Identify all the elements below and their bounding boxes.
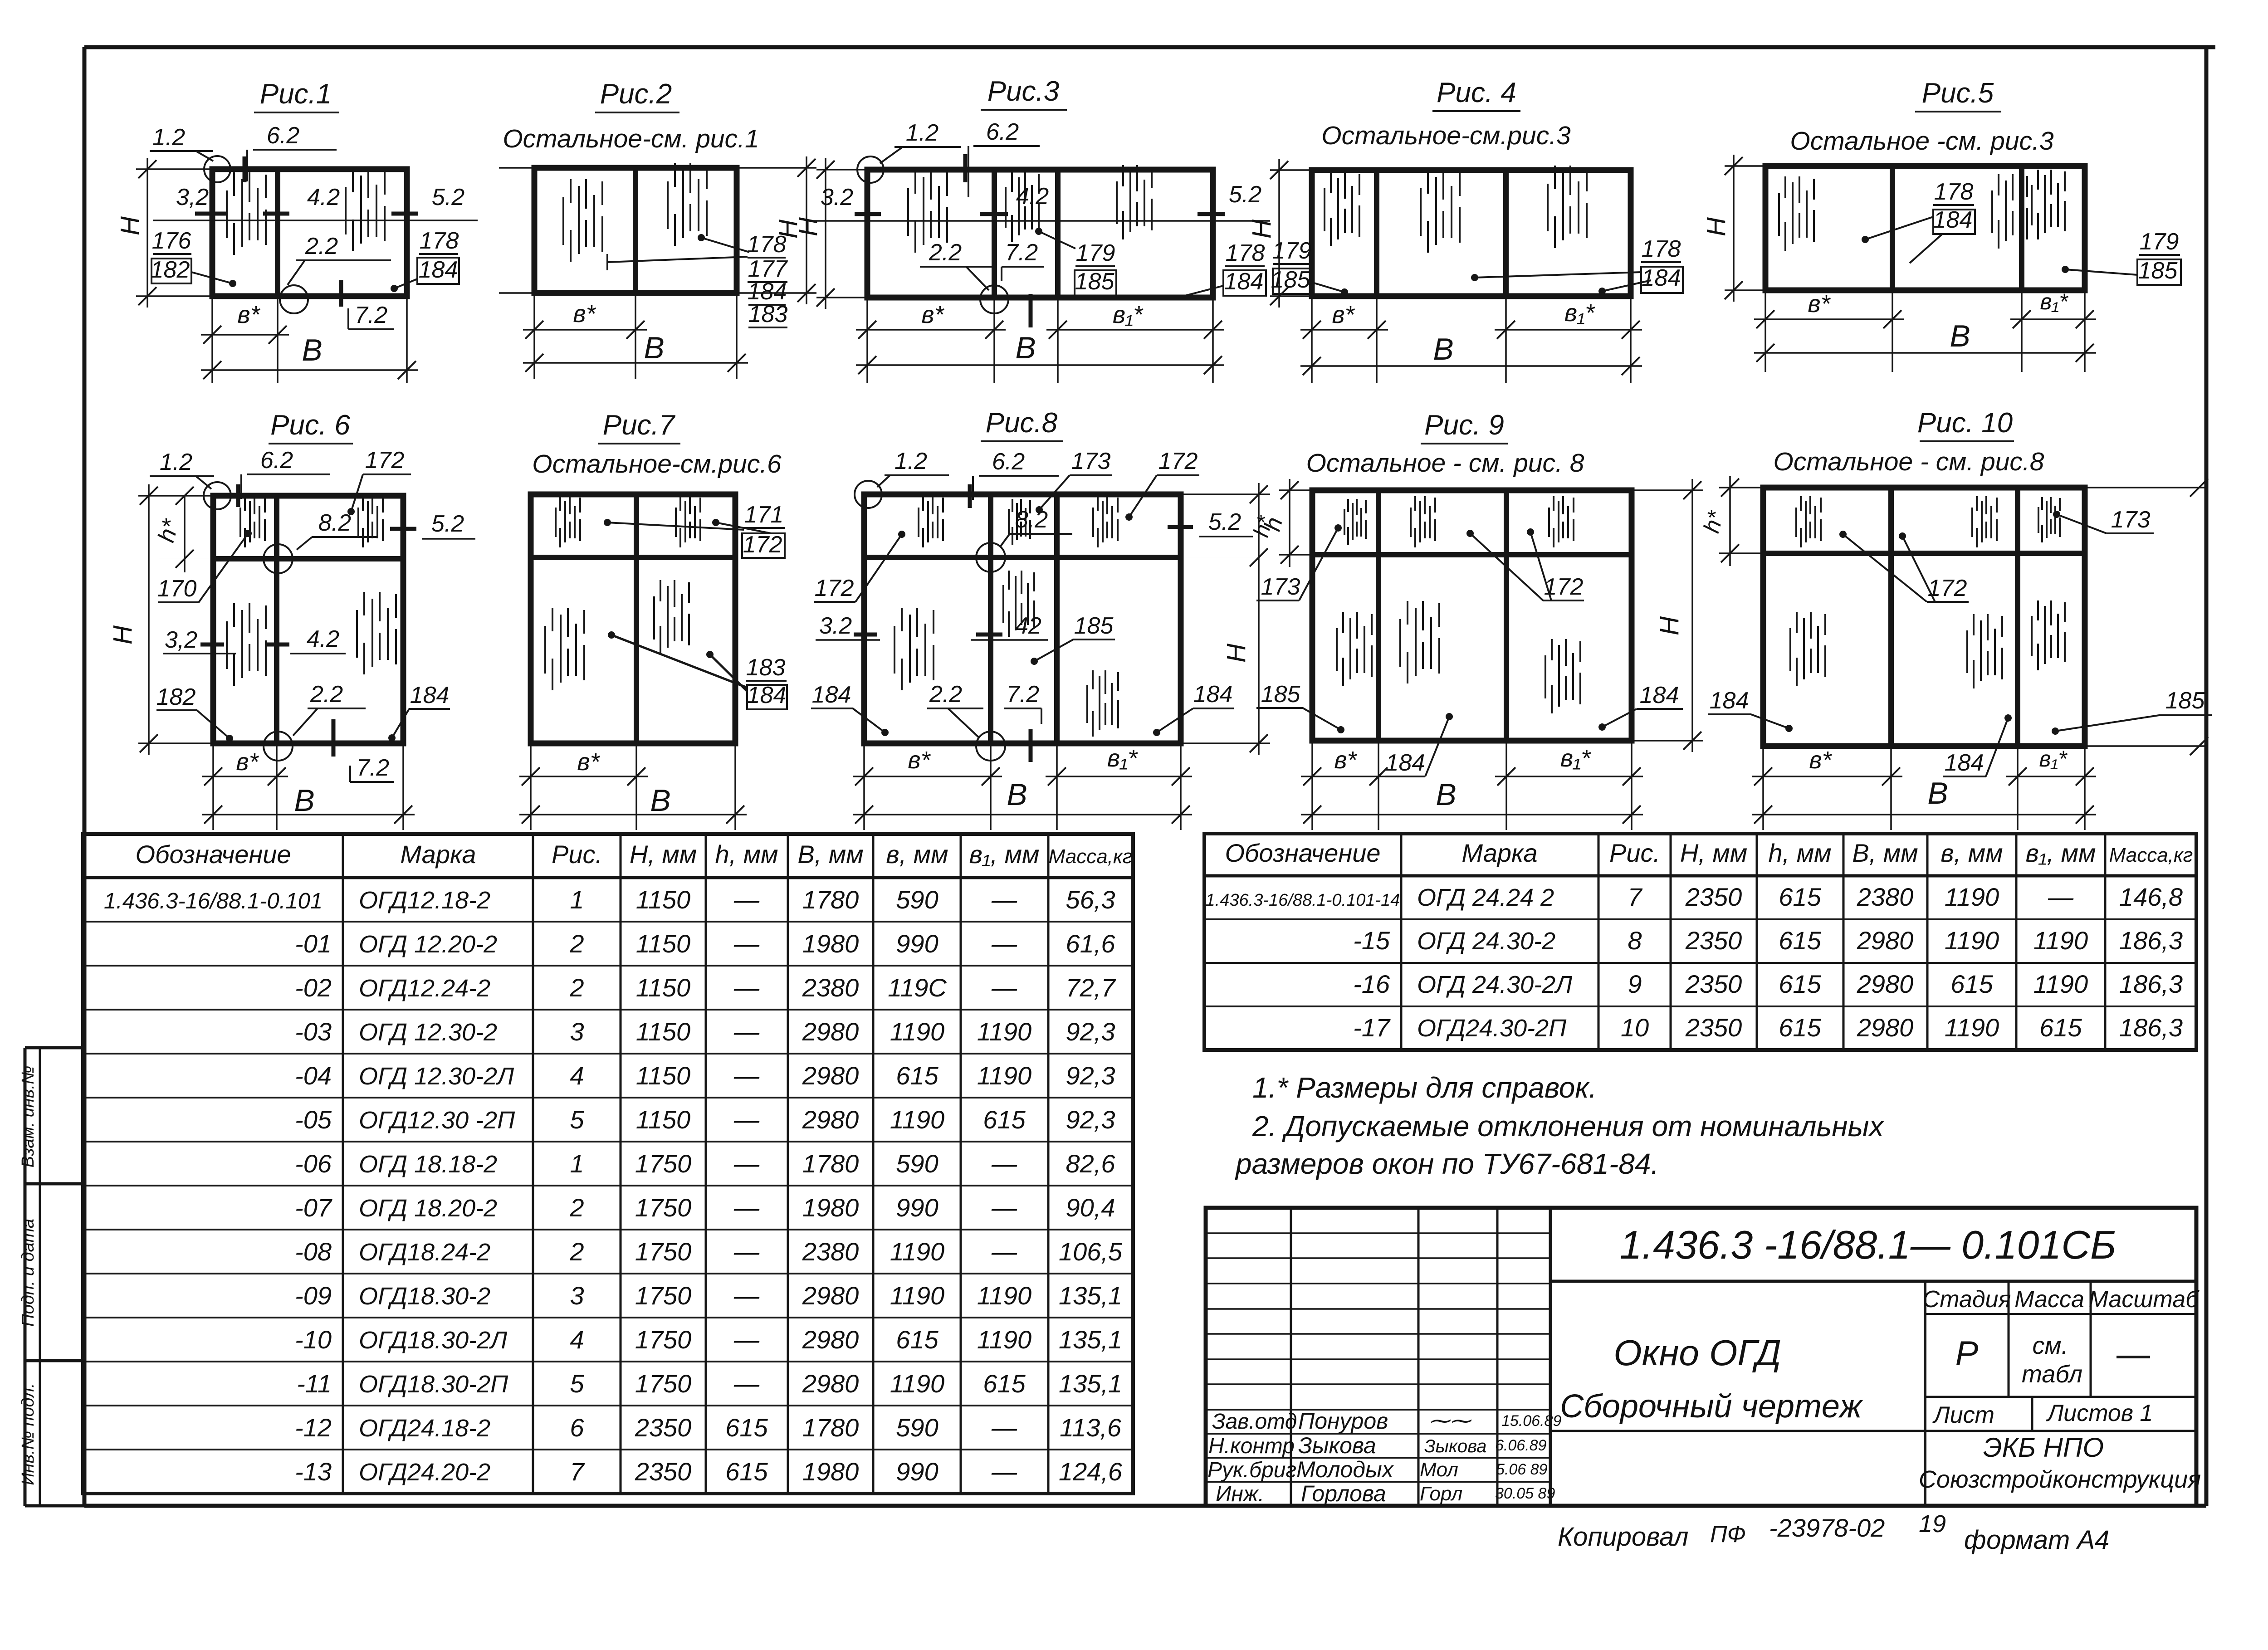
svg-text:184: 184	[419, 257, 458, 283]
svg-text:61,6: 61,6	[1066, 929, 1116, 958]
svg-text:-03: -03	[295, 1017, 332, 1046]
svg-text:Инв.№ подл.: Инв.№ подл.	[19, 1383, 38, 1485]
svg-text:1.2: 1.2	[906, 120, 938, 146]
svg-text:615: 615	[1779, 883, 1821, 911]
svg-text:6.2: 6.2	[260, 447, 293, 474]
svg-text:182: 182	[151, 257, 190, 283]
svg-text:3.2: 3.2	[821, 184, 853, 210]
svg-text:42: 42	[1015, 613, 1041, 639]
svg-text:⁓⁓: ⁓⁓	[1429, 1409, 1472, 1432]
svg-text:Обозначение: Обозначение	[1225, 839, 1380, 867]
svg-text:184: 184	[747, 682, 787, 708]
svg-text:—: —	[991, 1457, 1017, 1486]
svg-text:в, мм: в, мм	[1941, 839, 2003, 867]
svg-text:В: В	[1927, 776, 1948, 810]
svg-text:—: —	[733, 973, 760, 1002]
svg-text:2980: 2980	[802, 1325, 859, 1354]
svg-text:990: 990	[896, 1193, 938, 1222]
svg-text:в*: в*	[573, 300, 596, 327]
svg-text:В: В	[1950, 319, 1970, 353]
svg-text:Марка: Марка	[1461, 839, 1537, 867]
svg-text:1980: 1980	[802, 1193, 859, 1222]
svg-text:615: 615	[1950, 970, 1993, 998]
svg-text:Р: Р	[1955, 1334, 1979, 1373]
svg-text:ОГД18.30-2: ОГД18.30-2	[359, 1283, 490, 1310]
svg-text:184: 184	[1193, 681, 1233, 708]
svg-text:-17: -17	[1353, 1013, 1391, 1042]
svg-text:Взам. инв.№: Взам. инв.№	[19, 1066, 38, 1167]
svg-text:172: 172	[743, 532, 782, 558]
svg-text:-23978-02: -23978-02	[1769, 1513, 1885, 1542]
svg-text:2980: 2980	[802, 1281, 859, 1310]
svg-text:184: 184	[1386, 750, 1425, 776]
svg-text:Н: Н	[1247, 220, 1276, 239]
svg-text:-01: -01	[295, 929, 332, 958]
svg-text:9: 9	[1628, 970, 1642, 998]
svg-text:Рис.8: Рис.8	[986, 407, 1058, 439]
svg-text:-15: -15	[1353, 926, 1390, 955]
svg-text:7: 7	[570, 1457, 585, 1486]
svg-text:ОГД24.18-2: ОГД24.18-2	[359, 1415, 490, 1442]
svg-text:—: —	[733, 1061, 760, 1090]
svg-text:2.2: 2.2	[310, 681, 343, 708]
svg-text:2380: 2380	[802, 1237, 859, 1266]
svg-text:590: 590	[896, 885, 938, 914]
svg-text:1190: 1190	[977, 1017, 1031, 1046]
svg-text:в*: в*	[237, 301, 260, 328]
svg-text:Рис. 4: Рис. 4	[1437, 77, 1516, 108]
svg-text:6.2: 6.2	[986, 119, 1019, 145]
svg-text:-04: -04	[295, 1061, 332, 1090]
svg-text:184: 184	[1710, 688, 1749, 714]
svg-text:в₁*: в₁*	[1113, 301, 1144, 328]
svg-text:в₁*: в₁*	[1564, 299, 1595, 327]
svg-text:185: 185	[2138, 258, 2178, 284]
svg-text:-10: -10	[295, 1325, 332, 1354]
svg-text:5.06 89: 5.06 89	[1496, 1461, 1548, 1478]
svg-text:1980: 1980	[802, 929, 859, 958]
svg-text:Марка: Марка	[400, 840, 476, 869]
svg-text:Рис.: Рис.	[552, 840, 602, 869]
svg-text:Копировал: Копировал	[1558, 1522, 1688, 1552]
svg-text:1190: 1190	[977, 1325, 1031, 1354]
svg-text:173: 173	[1261, 574, 1300, 600]
svg-text:в*: в*	[236, 748, 259, 776]
svg-text:5: 5	[570, 1105, 584, 1134]
svg-text:185: 185	[1271, 267, 1311, 293]
svg-text:72,7: 72,7	[1066, 973, 1116, 1002]
svg-text:1.* Размеры для справок.: 1.* Размеры для справок.	[1252, 1071, 1597, 1104]
svg-text:6: 6	[570, 1413, 584, 1442]
svg-text:1.2: 1.2	[160, 449, 192, 475]
svg-text:Масштаб: Масштаб	[2089, 1286, 2200, 1313]
svg-text:106,5: 106,5	[1059, 1237, 1123, 1266]
svg-text:в*: в*	[577, 748, 600, 776]
svg-text:1: 1	[570, 1149, 584, 1178]
svg-text:1190: 1190	[890, 1281, 944, 1310]
svg-text:1190: 1190	[2033, 970, 2088, 998]
svg-text:2980: 2980	[802, 1017, 859, 1046]
svg-text:2350: 2350	[635, 1413, 692, 1442]
svg-text:Рис.: Рис.	[1609, 839, 1660, 867]
svg-text:135,1: 135,1	[1059, 1325, 1122, 1354]
svg-text:ОГД18.30-2Л: ОГД18.30-2Л	[359, 1327, 508, 1354]
svg-text:615: 615	[983, 1369, 1026, 1398]
svg-text:В: В	[1436, 777, 1456, 812]
svg-text:4: 4	[570, 1061, 584, 1090]
svg-text:90,4: 90,4	[1066, 1193, 1115, 1222]
svg-text:в*: в*	[921, 301, 944, 328]
svg-text:173: 173	[1071, 448, 1111, 474]
svg-text:176: 176	[152, 228, 191, 254]
svg-text:185: 185	[1075, 268, 1115, 295]
svg-text:В: В	[650, 783, 670, 818]
svg-text:-13: -13	[295, 1457, 332, 1486]
svg-text:184: 184	[1224, 268, 1264, 295]
svg-text:размеров окон по ТУ67-681-: размеров окон по ТУ67-681-84.	[1235, 1147, 1659, 1180]
svg-text:1.436.3-16/88.1-0.101: 1.436.3-16/88.1-0.101	[104, 889, 323, 913]
svg-text:2: 2	[569, 973, 584, 1002]
svg-text:ЭКБ НПО: ЭКБ НПО	[1983, 1432, 2104, 1463]
svg-text:Мол: Мол	[1420, 1459, 1458, 1481]
svg-text:6.2: 6.2	[992, 449, 1025, 475]
svg-text:184: 184	[1945, 750, 1984, 776]
svg-text:—: —	[991, 1149, 1017, 1178]
svg-text:Рис. 9: Рис. 9	[1424, 410, 1504, 441]
svg-text:186,3: 186,3	[2119, 926, 2183, 955]
svg-text:в*: в*	[1332, 301, 1355, 328]
svg-text:Понуров: Понуров	[1298, 1408, 1388, 1434]
svg-text:ОГД 24.24 2: ОГД 24.24 2	[1417, 884, 1554, 911]
svg-text:5.2: 5.2	[1229, 181, 1261, 208]
svg-text:1190: 1190	[1945, 1013, 1999, 1042]
svg-text:184: 184	[812, 682, 851, 708]
svg-text:82,6: 82,6	[1066, 1149, 1116, 1178]
svg-text:—: —	[991, 929, 1017, 958]
svg-text:ОГД18.30-2П: ОГД18.30-2П	[359, 1371, 508, 1398]
svg-text:в₁*: в₁*	[1560, 745, 1591, 772]
svg-text:ОГД18.24-2: ОГД18.24-2	[359, 1239, 490, 1266]
svg-text:3,2: 3,2	[165, 627, 197, 653]
svg-text:3: 3	[570, 1281, 584, 1310]
svg-text:172: 172	[1158, 448, 1198, 474]
svg-text:178: 178	[1934, 179, 1974, 205]
svg-text:4: 4	[570, 1325, 584, 1354]
svg-text:3: 3	[570, 1017, 584, 1046]
svg-text:Инж.: Инж.	[1216, 1482, 1264, 1506]
svg-text:30.05 89: 30.05 89	[1495, 1485, 1555, 1502]
svg-text:119С: 119С	[888, 973, 947, 1002]
svg-text:Стадия: Стадия	[1923, 1286, 2011, 1313]
svg-text:185: 185	[1261, 681, 1301, 708]
svg-text:183: 183	[748, 301, 788, 327]
svg-text:Н, мм: Н, мм	[1680, 839, 1747, 867]
svg-text:5.2: 5.2	[432, 184, 464, 210]
svg-text:Масса,кг: Масса,кг	[1049, 845, 1133, 868]
svg-text:135,1: 135,1	[1059, 1369, 1122, 1398]
svg-text:113,6: 113,6	[1060, 1413, 1122, 1442]
svg-text:—: —	[2048, 883, 2074, 911]
svg-text:в₁*: в₁*	[1107, 745, 1138, 772]
svg-text:В: В	[1007, 777, 1027, 812]
svg-text:590: 590	[896, 1149, 938, 1178]
svg-text:92,3: 92,3	[1066, 1061, 1115, 1090]
svg-text:Рис.2: Рис.2	[600, 78, 672, 110]
svg-text:615: 615	[725, 1413, 768, 1442]
svg-text:615: 615	[725, 1457, 768, 1486]
svg-text:179: 179	[2140, 229, 2179, 255]
svg-text:1150: 1150	[636, 1017, 690, 1046]
svg-text:3,2: 3,2	[176, 184, 209, 210]
svg-text:Остальное - см. рис. 8: Остальное - см. рис. 8	[1306, 449, 1584, 478]
svg-text:135,1: 135,1	[1059, 1281, 1122, 1310]
svg-text:Остальное-см. рис.1: Остальное-см. рис.1	[503, 124, 759, 153]
svg-text:Остальное -см. рис.3: Остальное -см. рис.3	[1790, 127, 2053, 156]
svg-text:615: 615	[1779, 1013, 1821, 1042]
svg-text:2350: 2350	[635, 1457, 692, 1486]
svg-text:183: 183	[746, 654, 786, 681]
svg-text:2980: 2980	[802, 1061, 859, 1090]
svg-text:7.2: 7.2	[355, 302, 387, 328]
svg-text:615: 615	[896, 1061, 938, 1090]
svg-text:4.2: 4.2	[1016, 183, 1049, 210]
svg-text:—: —	[733, 1237, 760, 1266]
svg-text:6.2: 6.2	[267, 122, 299, 149]
svg-text:Н.контр: Н.контр	[1208, 1434, 1295, 1458]
svg-text:В: В	[1433, 332, 1453, 366]
svg-text:1190: 1190	[1945, 926, 1999, 955]
svg-text:—: —	[991, 885, 1017, 914]
svg-text:—: —	[991, 1193, 1017, 1222]
svg-text:ОГД 24.30-2Л: ОГД 24.30-2Л	[1417, 971, 1573, 998]
svg-text:172: 172	[815, 575, 854, 601]
svg-text:ОГД12.30 -2П: ОГД12.30 -2П	[359, 1107, 515, 1134]
svg-text:-09: -09	[295, 1281, 332, 1310]
svg-text:1190: 1190	[977, 1281, 1031, 1310]
svg-text:7.2: 7.2	[357, 755, 389, 781]
svg-text:2: 2	[569, 1193, 584, 1222]
svg-text:Зав.отд: Зав.отд	[1212, 1410, 1297, 1434]
svg-text:8.2: 8.2	[1015, 507, 1048, 533]
svg-text:1190: 1190	[2033, 926, 2088, 955]
svg-text:2980: 2980	[1857, 926, 1914, 955]
svg-text:—: —	[991, 973, 1017, 1002]
svg-text:в₁*: в₁*	[2039, 746, 2068, 771]
svg-text:615: 615	[1779, 926, 1821, 955]
svg-text:—: —	[733, 885, 760, 914]
svg-text:8: 8	[1628, 926, 1642, 955]
svg-text:2350: 2350	[1685, 1013, 1742, 1042]
svg-text:Рис. 6: Рис. 6	[270, 410, 350, 441]
svg-text:ОГД 18.18-2: ОГД 18.18-2	[359, 1151, 497, 1178]
svg-text:—: —	[991, 1237, 1017, 1266]
svg-text:Горл: Горл	[1420, 1483, 1462, 1505]
svg-text:Н: Н	[115, 216, 145, 235]
svg-text:Остальное-см.рис.3: Остальное-см.рис.3	[1321, 121, 1571, 150]
svg-text:Лист: Лист	[1932, 1402, 1994, 1428]
svg-text:1190: 1190	[890, 1369, 944, 1398]
svg-text:2: 2	[569, 1237, 584, 1266]
svg-text:В: В	[294, 783, 314, 818]
svg-text:-16: -16	[1353, 970, 1390, 998]
svg-text:4.2: 4.2	[307, 184, 340, 210]
svg-text:185: 185	[1074, 613, 1114, 639]
svg-text:Масса: Масса	[2014, 1286, 2084, 1313]
svg-text:178: 178	[1226, 240, 1265, 266]
svg-text:ОГД 12.30-2: ОГД 12.30-2	[359, 1019, 497, 1046]
svg-text:92,3: 92,3	[1066, 1017, 1115, 1046]
svg-text:-02: -02	[295, 973, 332, 1002]
svg-text:В: В	[302, 333, 322, 367]
svg-text:5.2: 5.2	[1208, 509, 1241, 535]
svg-text:1780: 1780	[802, 1149, 859, 1178]
svg-text:2350: 2350	[1685, 883, 1742, 911]
svg-text:7.2: 7.2	[1007, 681, 1039, 708]
svg-text:1150: 1150	[636, 1105, 690, 1134]
svg-text:2.2: 2.2	[305, 233, 338, 259]
svg-text:Подп. и дата: Подп. и дата	[19, 1219, 38, 1327]
svg-text:170: 170	[157, 576, 197, 602]
svg-text:В: В	[644, 331, 664, 365]
svg-text:ОГД12.18-2: ОГД12.18-2	[359, 887, 490, 914]
svg-text:178: 178	[747, 231, 787, 258]
svg-text:2380: 2380	[1857, 883, 1914, 911]
svg-text:1190: 1190	[1945, 883, 1999, 911]
svg-text:—: —	[733, 1105, 760, 1134]
svg-text:615: 615	[983, 1105, 1026, 1134]
svg-text:-12: -12	[295, 1413, 332, 1442]
svg-text:-07: -07	[295, 1193, 332, 1222]
svg-text:184: 184	[1640, 682, 1679, 708]
svg-text:Листов 1: Листов 1	[2046, 1400, 2153, 1426]
svg-text:Н: Н	[108, 625, 137, 644]
svg-text:в*: в*	[1334, 747, 1357, 774]
svg-text:Рис.3: Рис.3	[987, 76, 1060, 107]
svg-text:в*: в*	[1809, 747, 1832, 774]
svg-text:В, мм: В, мм	[797, 840, 863, 869]
svg-text:Рис. 10: Рис. 10	[1917, 407, 2013, 439]
svg-text:8.2: 8.2	[318, 510, 351, 536]
svg-text:Н: Н	[1701, 217, 1731, 236]
svg-text:2350: 2350	[1685, 970, 1742, 998]
svg-text:—: —	[733, 929, 760, 958]
svg-text:ОГД24.20-2: ОГД24.20-2	[359, 1459, 490, 1486]
svg-text:1150: 1150	[636, 929, 690, 958]
svg-text:1150: 1150	[636, 885, 690, 914]
svg-text:Остальное - см. рис.8: Остальное - см. рис.8	[1774, 447, 2044, 476]
svg-text:Масса,кг: Масса,кг	[2109, 844, 2193, 866]
svg-text:1780: 1780	[802, 885, 859, 914]
svg-text:1750: 1750	[635, 1193, 692, 1222]
svg-text:ОГД 24.30-2: ОГД 24.30-2	[1417, 928, 1555, 955]
svg-text:Н, мм: Н, мм	[630, 840, 697, 869]
svg-text:-06: -06	[295, 1149, 332, 1178]
svg-text:ОГД24.30-2П: ОГД24.30-2П	[1417, 1015, 1567, 1042]
svg-text:590: 590	[896, 1413, 938, 1442]
svg-text:2980: 2980	[1857, 1013, 1914, 1042]
svg-text:2380: 2380	[802, 973, 859, 1002]
svg-text:1190: 1190	[890, 1017, 944, 1046]
svg-text:3.2: 3.2	[819, 613, 852, 639]
svg-text:в*: в*	[1808, 290, 1831, 317]
svg-text:ОГД12.24-2: ОГД12.24-2	[359, 975, 490, 1002]
svg-text:1150: 1150	[636, 1061, 690, 1090]
svg-text:—: —	[733, 1325, 760, 1354]
svg-text:1: 1	[570, 885, 584, 914]
svg-text:1750: 1750	[635, 1369, 692, 1398]
svg-text:1750: 1750	[635, 1325, 692, 1354]
svg-text:184: 184	[1933, 207, 1973, 233]
svg-text:ПФ: ПФ	[1710, 1521, 1746, 1547]
svg-text:Рис.5: Рис.5	[1922, 78, 1994, 109]
svg-text:615: 615	[896, 1325, 938, 1354]
svg-text:2.2: 2.2	[929, 681, 962, 708]
svg-text:5.2: 5.2	[431, 511, 464, 537]
svg-text:В, мм: В, мм	[1852, 839, 1918, 867]
svg-text:Горлова: Горлова	[1301, 1481, 1386, 1506]
svg-text:1.2: 1.2	[894, 448, 927, 474]
svg-text:Зыкова: Зыкова	[1424, 1436, 1486, 1456]
svg-text:2980: 2980	[1857, 970, 1914, 998]
svg-text:ОГД 18.20-2: ОГД 18.20-2	[359, 1195, 497, 1222]
svg-text:1750: 1750	[635, 1149, 692, 1178]
svg-text:Сборочный чертеж: Сборочный чертеж	[1560, 1388, 1863, 1425]
svg-text:—: —	[733, 1369, 760, 1398]
svg-text:-05: -05	[295, 1105, 332, 1134]
svg-text:формат А4: формат А4	[1964, 1525, 2109, 1555]
svg-text:1150: 1150	[636, 973, 690, 1002]
svg-text:124,6: 124,6	[1059, 1457, 1123, 1486]
svg-text:19: 19	[1919, 1510, 1946, 1538]
svg-text:Рис.7: Рис.7	[603, 410, 676, 441]
svg-text:184: 184	[1642, 265, 1681, 291]
svg-text:в, мм: в, мм	[886, 840, 948, 869]
svg-text:615: 615	[2039, 1013, 2082, 1042]
svg-text:в₁, мм: в₁, мм	[2026, 839, 2096, 867]
svg-text:в₁, мм: в₁, мм	[969, 840, 1040, 869]
svg-text:В: В	[1015, 331, 1036, 365]
svg-text:1750: 1750	[635, 1237, 692, 1266]
svg-text:Молодых: Молодых	[1296, 1457, 1394, 1482]
svg-text:Н: Н	[1655, 616, 1684, 635]
svg-text:—: —	[991, 1413, 1017, 1442]
svg-text:Н: Н	[1222, 644, 1251, 663]
svg-text:7: 7	[1628, 883, 1642, 911]
svg-text:182: 182	[156, 684, 196, 710]
svg-text:1980: 1980	[802, 1457, 859, 1486]
svg-text:-08: -08	[295, 1237, 332, 1266]
svg-text:Зыкова: Зыкова	[1298, 1433, 1376, 1458]
svg-text:171: 171	[744, 502, 784, 528]
svg-text:185: 185	[2165, 688, 2205, 714]
svg-text:см.: см.	[2032, 1332, 2068, 1359]
svg-text:173: 173	[2111, 507, 2151, 533]
svg-text:1190: 1190	[890, 1105, 944, 1134]
svg-text:990: 990	[896, 929, 938, 958]
svg-text:Остальное-см.рис.6: Остальное-см.рис.6	[532, 449, 782, 478]
svg-text:h, мм: h, мм	[715, 840, 778, 869]
svg-text:2980: 2980	[802, 1369, 859, 1398]
svg-text:1190: 1190	[890, 1237, 944, 1266]
svg-text:—: —	[733, 1281, 760, 1310]
svg-text:Рук.бриг: Рук.бриг	[1207, 1458, 1296, 1482]
svg-text:в₁*: в₁*	[2040, 289, 2068, 314]
svg-text:990: 990	[896, 1457, 938, 1486]
svg-text:—: —	[733, 1017, 760, 1046]
svg-text:186,3: 186,3	[2119, 1013, 2183, 1042]
svg-text:179: 179	[1076, 240, 1115, 266]
svg-text:2350: 2350	[1685, 926, 1742, 955]
